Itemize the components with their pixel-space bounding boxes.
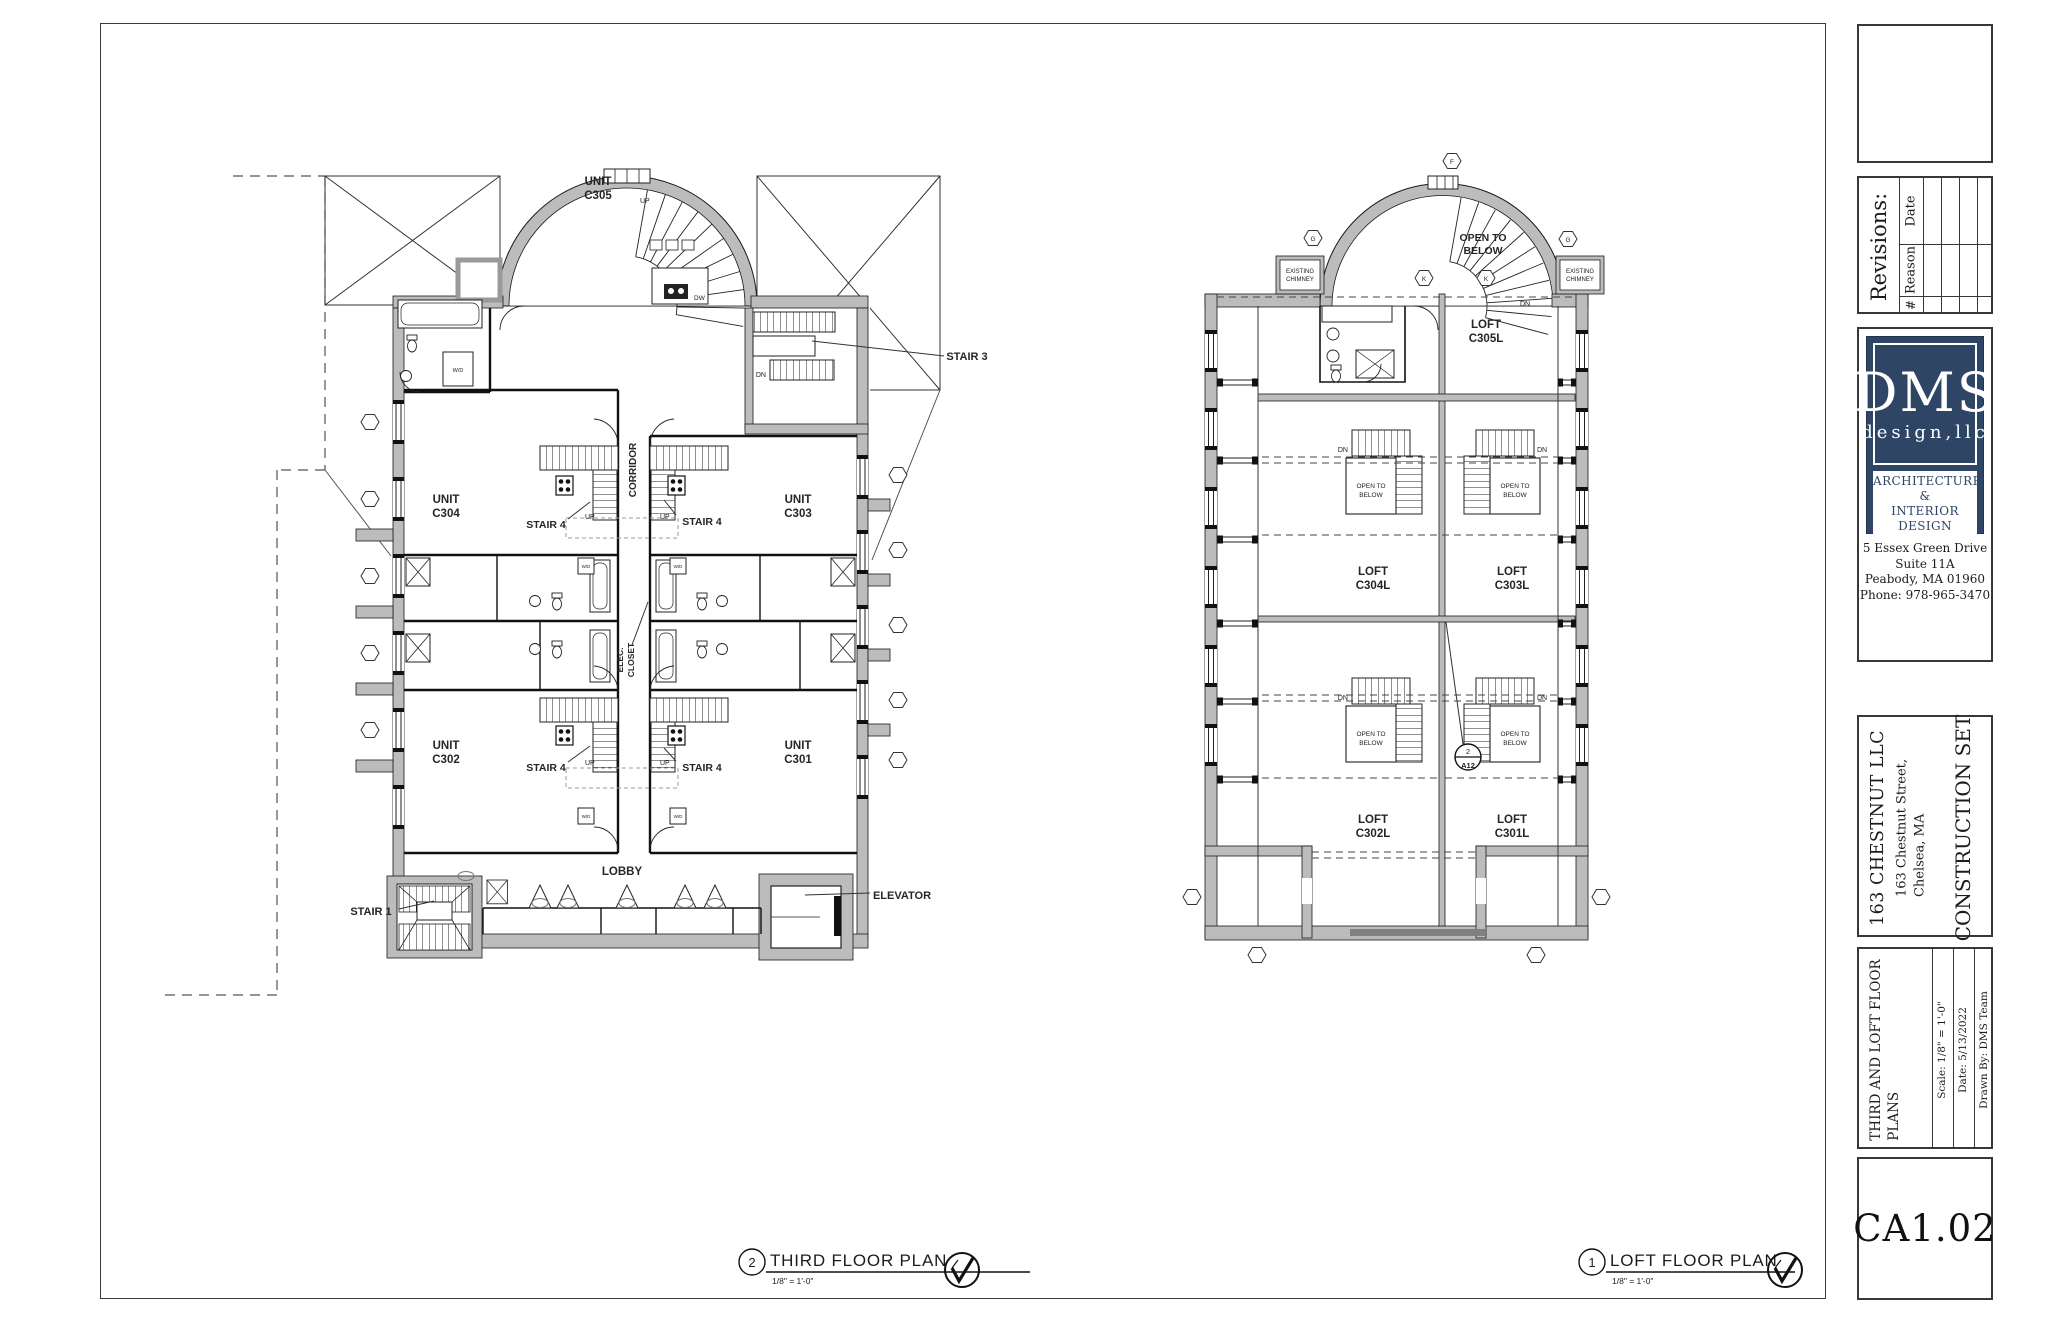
svg-text:C304L: C304L xyxy=(1356,580,1391,592)
svg-text:C302: C302 xyxy=(432,754,460,766)
third-floor-plan: UNIT C305 UNIT C304 UNIT C303 UNIT C302 … xyxy=(165,169,988,995)
svg-text:K: K xyxy=(1484,276,1489,283)
svg-text:K: K xyxy=(1422,276,1427,283)
loft-floor-plan: 2 A12 F G G K K OPEN TO BELOW EXISTING xyxy=(1183,154,1610,963)
svg-text:DN: DN xyxy=(1537,695,1547,702)
svg-text:UP: UP xyxy=(660,514,670,521)
unit-c303-label: UNIT xyxy=(785,494,812,506)
svg-text:BELOW: BELOW xyxy=(1503,740,1527,747)
stair1-label: STAIR 1 xyxy=(350,906,391,918)
arc-window xyxy=(1428,176,1458,189)
svg-text:W/D: W/D xyxy=(674,814,683,819)
svg-text:1: 1 xyxy=(1588,1255,1595,1270)
plan-title-loft: 1 LOFT FLOOR PLAN 1/8" = 1'-0" xyxy=(1579,1249,1802,1287)
drawing-sheet: UNIT C305 UNIT C304 UNIT C303 UNIT C302 … xyxy=(0,0,2048,1325)
svg-text:OPEN TO: OPEN TO xyxy=(1459,232,1506,244)
svg-text:2: 2 xyxy=(1466,747,1470,756)
svg-text:EXISTING: EXISTING xyxy=(1566,269,1594,275)
svg-text:CLOSET: CLOSET xyxy=(626,642,636,677)
svg-text:C304: C304 xyxy=(432,508,460,520)
stair3-label: STAIR 3 xyxy=(946,351,987,363)
svg-text:STAIR 4: STAIR 4 xyxy=(526,519,566,531)
svg-text:A12: A12 xyxy=(1461,761,1475,770)
svg-text:OPEN TO: OPEN TO xyxy=(1356,731,1385,738)
plan-title-third: 2 THIRD FLOOR PLAN 1/8" = 1'-0" xyxy=(739,1249,1030,1287)
svg-text:CHIMNEY: CHIMNEY xyxy=(1286,277,1314,283)
loft-c302l-label: LOFT xyxy=(1358,814,1388,826)
svg-text:BELOW: BELOW xyxy=(1359,492,1383,499)
svg-text:DN: DN xyxy=(1338,447,1348,454)
third-plan-title: THIRD FLOOR PLAN xyxy=(770,1251,947,1270)
svg-text:UP: UP xyxy=(660,760,670,767)
svg-text:C302L: C302L xyxy=(1356,828,1391,840)
svg-text:CHIMNEY: CHIMNEY xyxy=(1566,277,1594,283)
svg-text:W/D: W/D xyxy=(674,564,683,569)
unit-c301-label: UNIT xyxy=(785,740,812,752)
svg-text:UP: UP xyxy=(640,198,650,205)
svg-text:UP: UP xyxy=(585,514,595,521)
svg-text:1/8" = 1'-0": 1/8" = 1'-0" xyxy=(1612,1276,1653,1286)
lobby-label: LOBBY xyxy=(602,866,643,878)
unit-c302-label: UNIT xyxy=(433,740,460,752)
loft-c301l-label: LOFT xyxy=(1497,814,1527,826)
floor-plan-drawings: UNIT C305 UNIT C304 UNIT C303 UNIT C302 … xyxy=(0,0,2048,1325)
svg-text:OPEN TO: OPEN TO xyxy=(1356,483,1385,490)
svg-text:2: 2 xyxy=(748,1255,755,1270)
svg-text:W/D: W/D xyxy=(582,564,591,569)
svg-text:BELOW: BELOW xyxy=(1503,492,1527,499)
svg-text:C305L: C305L xyxy=(1469,333,1504,345)
loft-plan-title: LOFT FLOOR PLAN xyxy=(1610,1251,1778,1270)
svg-text:C303: C303 xyxy=(784,508,812,520)
svg-text:STAIR 4: STAIR 4 xyxy=(682,762,722,774)
svg-text:DN: DN xyxy=(1520,301,1530,308)
svg-text:C301: C301 xyxy=(784,754,812,766)
svg-text:C303L: C303L xyxy=(1495,580,1530,592)
svg-text:OPEN TO: OPEN TO xyxy=(1500,483,1529,490)
unit-c305-label: UNIT xyxy=(585,176,612,188)
loft-c304l-label: LOFT xyxy=(1358,566,1388,578)
property-dashed-lines xyxy=(165,176,325,995)
svg-text:C301L: C301L xyxy=(1495,828,1530,840)
svg-text:BELOW: BELOW xyxy=(1463,245,1502,257)
svg-text:BELOW: BELOW xyxy=(1359,740,1383,747)
svg-text:W/D: W/D xyxy=(582,814,591,819)
svg-text:UP: UP xyxy=(585,760,595,767)
svg-text:ELEC.: ELEC. xyxy=(615,647,625,672)
svg-text:STAIR 4: STAIR 4 xyxy=(526,762,566,774)
svg-text:OPEN TO: OPEN TO xyxy=(1500,731,1529,738)
loft-c305l-label: LOFT xyxy=(1471,319,1501,331)
north-arrow-icon xyxy=(945,1253,979,1287)
svg-text:W/D: W/D xyxy=(453,368,464,374)
svg-text:EXISTING: EXISTING xyxy=(1286,269,1314,275)
svg-text:DN: DN xyxy=(1537,447,1547,454)
north-arrow-icon xyxy=(1768,1253,1802,1287)
svg-text:DN: DN xyxy=(756,372,766,379)
svg-text:G: G xyxy=(1565,237,1570,244)
svg-text:F: F xyxy=(1450,159,1454,166)
corridor-label: CORRIDOR xyxy=(628,442,639,497)
svg-text:STAIR 4: STAIR 4 xyxy=(682,516,722,528)
svg-text:1/8" = 1'-0": 1/8" = 1'-0" xyxy=(772,1276,813,1286)
elevator-label: ELEVATOR xyxy=(873,890,931,902)
svg-text:DW: DW xyxy=(694,295,706,302)
loft-c303l-label: LOFT xyxy=(1497,566,1527,578)
svg-text:DN: DN xyxy=(1338,695,1348,702)
svg-text:G: G xyxy=(1310,236,1315,243)
unit-c304-label: UNIT xyxy=(433,494,460,506)
svg-text:C305: C305 xyxy=(584,190,612,202)
stair-1 xyxy=(397,884,472,950)
